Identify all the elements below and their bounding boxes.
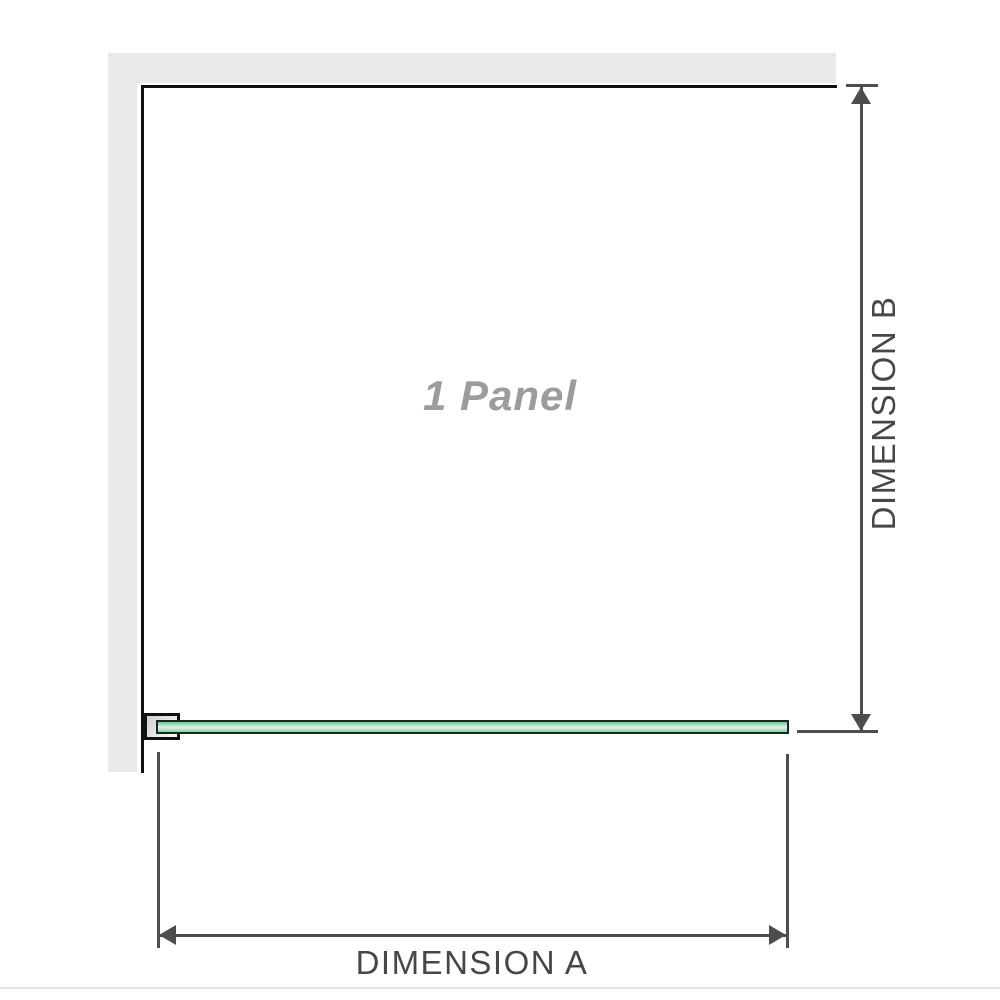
glass-panel-bar <box>156 720 789 734</box>
enclosure-outline-top <box>141 85 837 88</box>
dimension-a-label: DIMENSION A <box>272 941 672 985</box>
arrow-left-icon <box>159 925 176 945</box>
arrow-down-icon <box>851 714 871 731</box>
dimension-a-line <box>159 934 786 937</box>
baseline-rule <box>0 987 1000 989</box>
dimension-b-line <box>860 87 863 731</box>
wall-top-segment <box>108 53 836 83</box>
wall-side-segment <box>108 53 137 772</box>
arrow-up-icon <box>851 87 871 104</box>
dimension-a-extension-right <box>786 754 789 948</box>
panel-dimension-diagram: 1 Panel DIMENSION B DIMENSION A <box>0 0 1000 1000</box>
dimension-a-extension-left <box>157 752 160 948</box>
panel-count-label: 1 Panel <box>300 370 700 422</box>
dimension-b-label: DIMENSION B <box>864 263 904 563</box>
enclosure-outline-left <box>141 85 144 773</box>
arrow-right-icon <box>769 925 786 945</box>
